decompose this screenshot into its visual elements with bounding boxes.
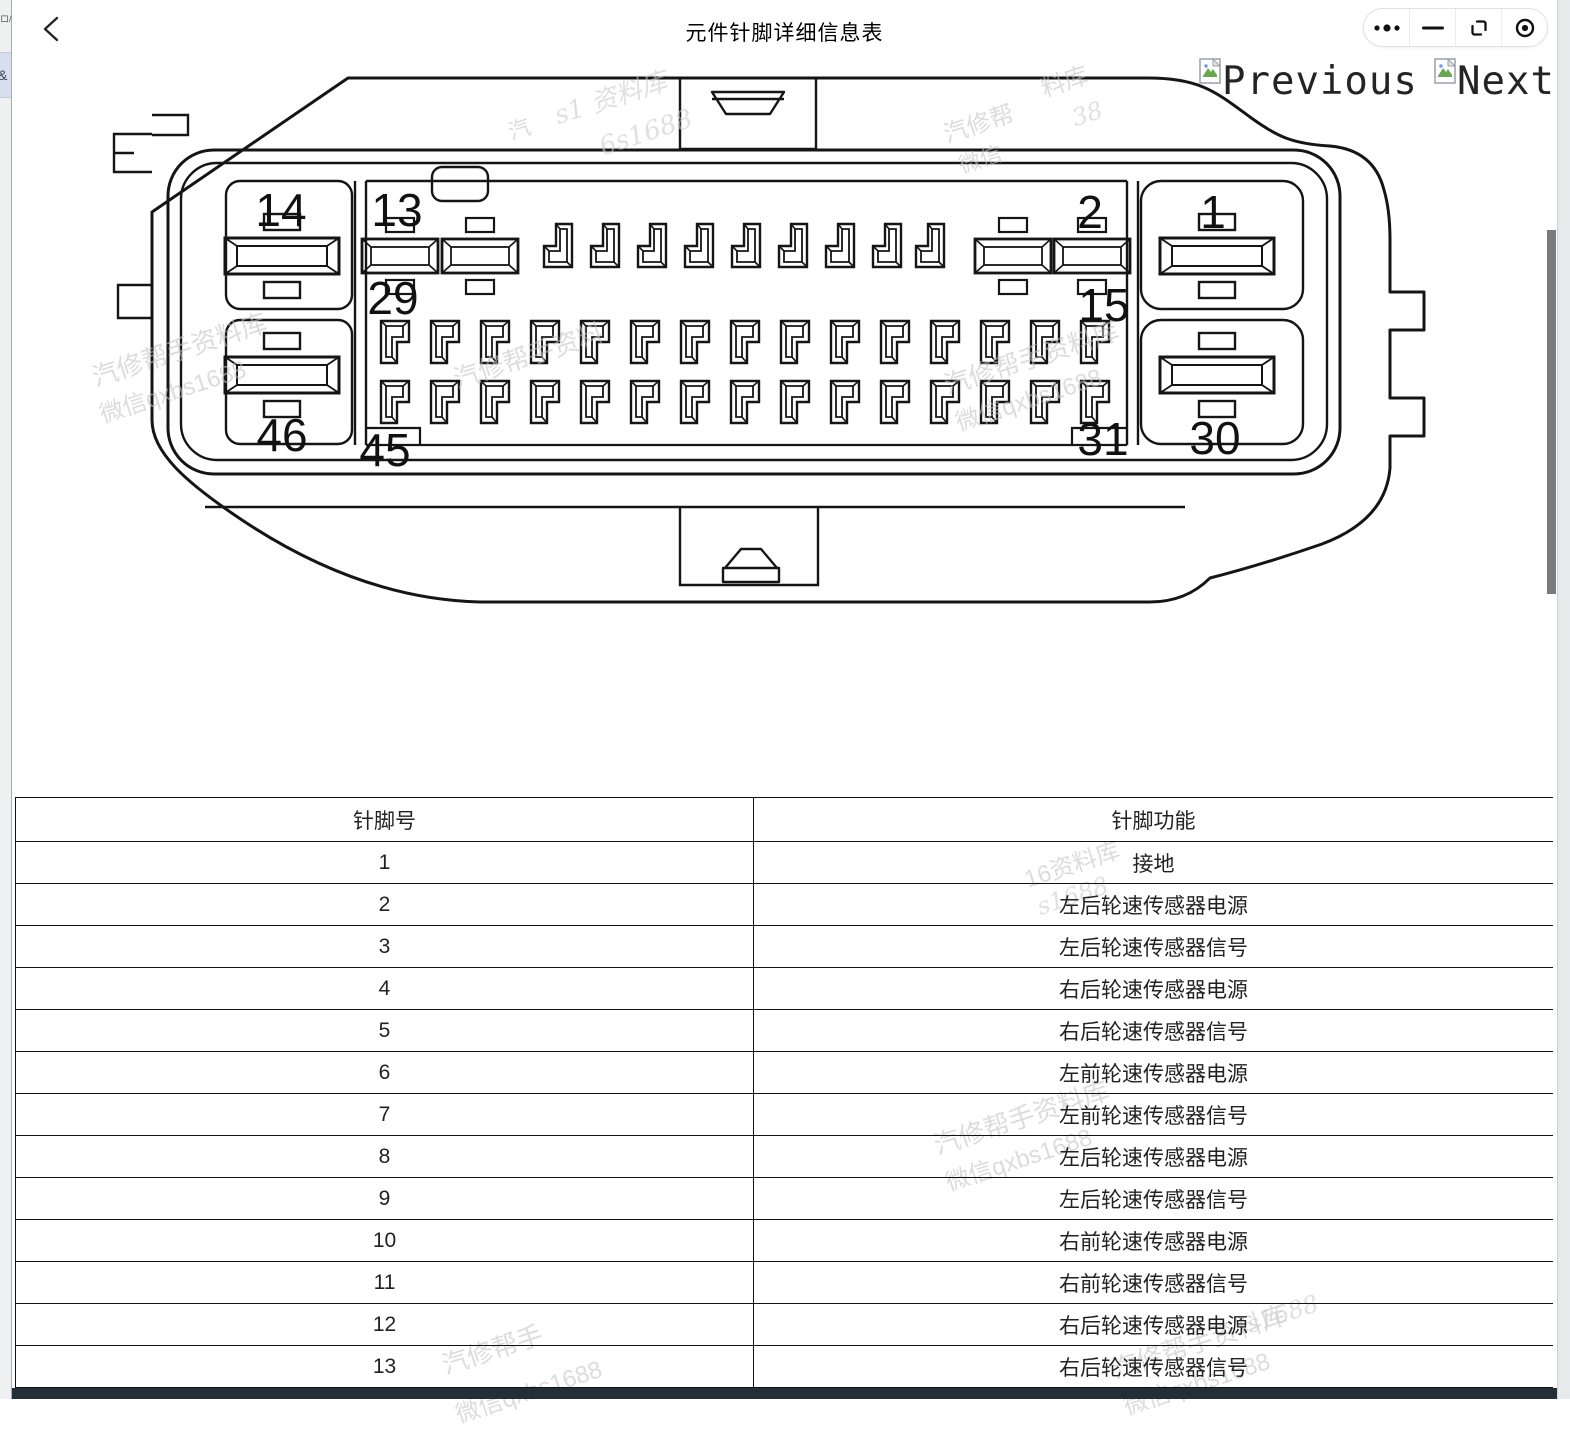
restore-icon (1469, 18, 1489, 38)
pin-function: 左后轮速传感器信号 (754, 1178, 1554, 1220)
previous-label: Previous (1222, 58, 1418, 106)
pin-number: 4 (16, 968, 754, 1010)
previous-link[interactable]: Previous (1199, 58, 1418, 106)
background-window-edge[interactable]: ロ/ & (0, 0, 12, 1399)
pin-number: 7 (16, 1094, 754, 1136)
table-row: 3左后轮速传感器信号 (16, 926, 1554, 968)
col-header-pin-number: 针脚号 (16, 798, 754, 842)
pin-number: 1 (16, 842, 754, 884)
pin-number: 10 (16, 1220, 754, 1262)
pin-number: 3 (16, 926, 754, 968)
pin-function-table: 针脚号 针脚功能 1接地 2左后轮速传感器电源 3左后轮速传感器信号 4右后轮速… (15, 797, 1553, 1388)
table-row: 11右前轮速传感器信号 (16, 1262, 1554, 1304)
more-button[interactable] (1364, 9, 1409, 46)
table-row: 10右前轮速传感器电源 (16, 1220, 1554, 1262)
table-row: 8左后轮速传感器电源 (16, 1136, 1554, 1178)
broken-image-icon (1434, 58, 1457, 87)
window-fragment-text: ロ/ (0, 12, 12, 25)
pin-label-31: 31 (1077, 413, 1128, 465)
close-circle-icon (1514, 17, 1536, 39)
pin-number: 12 (16, 1304, 754, 1346)
table-row: 9左后轮速传感器信号 (16, 1178, 1554, 1220)
pin-number: 2 (16, 884, 754, 926)
pin-number: 9 (16, 1178, 754, 1220)
pin-function: 左后轮速传感器信号 (754, 926, 1554, 968)
next-link[interactable]: Next (1434, 58, 1555, 106)
pin-number: 11 (16, 1262, 754, 1304)
pin-label-1: 1 (1200, 186, 1226, 238)
more-icon (1371, 22, 1403, 34)
table-header-row: 针脚号 针脚功能 (16, 798, 1554, 842)
table-row: 4右后轮速传感器电源 (16, 968, 1554, 1010)
pin-label-15: 15 (1078, 279, 1129, 331)
pin-label-13: 13 (371, 184, 422, 236)
bottom-bar (12, 1388, 1557, 1399)
title-bar: 元件针脚详细信息表 (12, 0, 1557, 56)
page-title: 元件针脚详细信息表 (12, 17, 1557, 47)
pin-number: 8 (16, 1136, 754, 1178)
scrollbar-thumb[interactable] (1547, 230, 1556, 594)
close-button[interactable] (1501, 9, 1547, 46)
pin-function: 右后轮速传感器信号 (754, 1010, 1554, 1052)
pin-number: 6 (16, 1052, 754, 1094)
table-row: 7左前轮速传感器信号 (16, 1094, 1554, 1136)
pin-function: 左前轮速传感器电源 (754, 1052, 1554, 1094)
table-row: 1接地 (16, 842, 1554, 884)
pin-function: 右后轮速传感器电源 (754, 1304, 1554, 1346)
pin-function: 右前轮速传感器电源 (754, 1220, 1554, 1262)
pin-function: 接地 (754, 842, 1554, 884)
table-row: 12右后轮速传感器电源 (16, 1304, 1554, 1346)
col-header-pin-function: 针脚功能 (754, 798, 1554, 842)
minimize-button[interactable] (1409, 9, 1455, 46)
pin-label-45: 45 (359, 424, 410, 476)
pin-label-14: 14 (255, 184, 306, 236)
pin-function: 右后轮速传感器电源 (754, 968, 1554, 1010)
pin-label-2: 2 (1077, 186, 1103, 238)
pin-number: 13 (16, 1346, 754, 1388)
pin-function: 左前轮速传感器信号 (754, 1094, 1554, 1136)
pin-label-30: 30 (1189, 412, 1240, 464)
pin-function: 左后轮速传感器电源 (754, 1136, 1554, 1178)
next-label: Next (1457, 58, 1555, 106)
pin-function: 右后轮速传感器信号 (754, 1346, 1554, 1388)
pin-function: 右前轮速传感器信号 (754, 1262, 1554, 1304)
pin-function: 左后轮速传感器电源 (754, 884, 1554, 926)
connector-pinout-diagram: 14 13 2 1 29 15 46 45 31 30 (0, 55, 1570, 800)
background-window-edge-right (1557, 0, 1570, 1399)
minimize-icon (1422, 25, 1444, 31)
table-row: 13右后轮速传感器信号 (16, 1346, 1554, 1388)
window-fragment-block: & (0, 52, 11, 98)
pin-label-29: 29 (367, 272, 418, 324)
table-row: 5右后轮速传感器信号 (16, 1010, 1554, 1052)
pin-label-46: 46 (256, 409, 307, 461)
fullscreen-button[interactable] (1455, 9, 1501, 46)
window-fragment-amp: & (0, 67, 7, 83)
window-controls (1363, 8, 1548, 47)
pin-number: 5 (16, 1010, 754, 1052)
broken-image-icon (1199, 58, 1222, 87)
table-row: 6左前轮速传感器电源 (16, 1052, 1554, 1094)
table-row: 2左后轮速传感器电源 (16, 884, 1554, 926)
